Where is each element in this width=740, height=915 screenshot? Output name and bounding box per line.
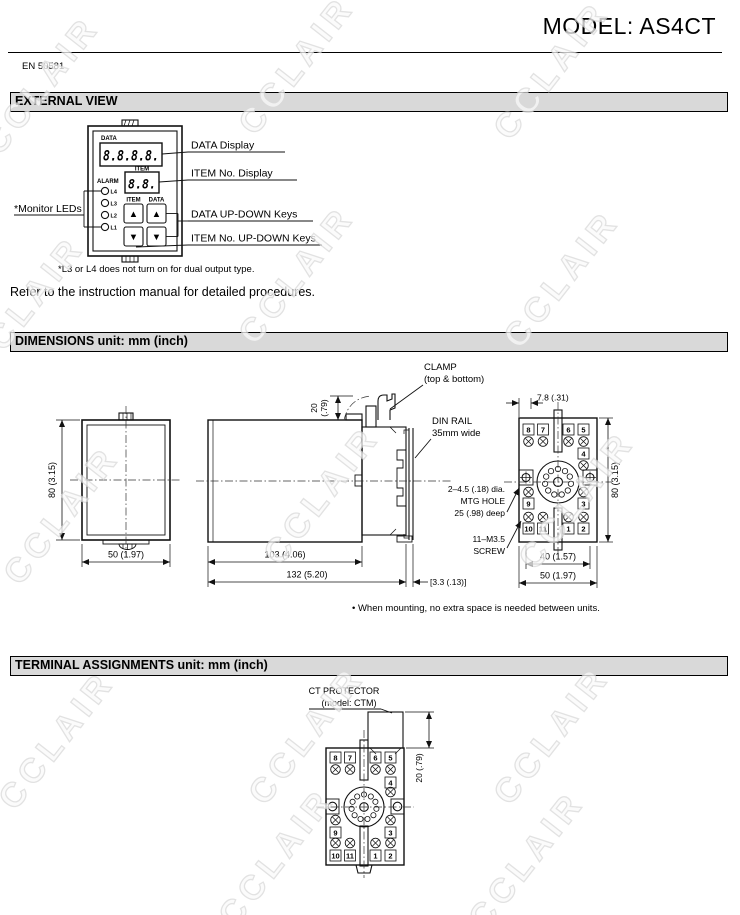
callout-lines: *Monitor LEDs DATA Display ITEM No. Disp… <box>14 140 322 248</box>
front-panel-drawing: DATA 8.8.8.8. ITEM 8.8. ALARM L4 L3 L2 L… <box>88 120 182 262</box>
terminal-assignments-figure: CT PROTECTOR (model: CTM) 8 7 6 5 4 <box>0 680 740 915</box>
down-arrow-icon: ▼ <box>152 232 161 243</box>
din-rail-callout: DIN RAIL <box>432 416 472 427</box>
mounting-note: • When mounting, no extra space is neede… <box>352 603 600 614</box>
led-icon <box>101 223 108 230</box>
data-keys-callout: DATA UP-DOWN Keys <box>191 209 297 221</box>
terminal-number: 4 <box>581 450 586 459</box>
din-rail-callout-2: 35mm wide <box>432 428 481 439</box>
body-depth-dim: 103 (4.06) <box>264 550 305 560</box>
terminal-number: 7 <box>348 754 352 763</box>
led-icon <box>101 187 108 194</box>
mtg-hole-callout-3: 25 (.98) deep <box>454 508 505 518</box>
din-rail-clip <box>397 450 406 506</box>
clamp-height-dim-in: (.79) <box>319 399 329 417</box>
clamp-callout: CLAMP <box>424 362 457 373</box>
terminal-number: 3 <box>581 500 585 509</box>
mtg-hole-callout-2: MTG HOLE <box>461 496 506 506</box>
protector-height-dim: 20 (.79) <box>414 753 424 782</box>
led-icon <box>101 211 108 218</box>
terminal-number: 9 <box>526 500 530 509</box>
terminal-number: 5 <box>581 426 585 435</box>
hole-pitch-dim: 40 (1.57) <box>540 552 576 562</box>
led-label: L3 <box>111 202 117 208</box>
terminal-number: 6 <box>373 754 377 763</box>
socket-height-dim: 80 (3.15) <box>610 462 620 498</box>
up-arrow-icon: ▲ <box>129 209 138 220</box>
terminal-number: 8 <box>333 754 337 763</box>
socket-terminals: 8 7 6 5 4 9 3 10 11 1 <box>330 752 396 861</box>
led-icon <box>101 199 108 206</box>
datasheet-page: CCLAIR CCLAIR CCLAIR CCLAIR CCLAIR CCLAI… <box>0 0 740 915</box>
terminal-number: 1 <box>566 525 570 534</box>
terminal-socket-drawing: 8 7 6 5 4 9 3 10 11 1 <box>316 730 414 878</box>
front-view-drawing: 80 (3.15) 50 (1.97) <box>47 406 182 567</box>
screw-callout: 11–M3.5 <box>473 534 506 544</box>
terminal-number: 7 <box>541 426 545 435</box>
terminal-number: 10 <box>524 525 532 534</box>
alarm-label: ALARM <box>97 179 119 185</box>
data-display-digits: 8.8.8.8. <box>103 149 159 165</box>
item-keys-column-label: ITEM <box>126 198 140 204</box>
terminal-number: 11 <box>539 525 547 534</box>
refer-note: Refer to the instruction manual for deta… <box>10 285 315 299</box>
terminal-number: 8 <box>526 426 530 435</box>
terminal-number: 2 <box>388 852 392 861</box>
terminal-number: 2 <box>581 525 585 534</box>
mtg-hole-callout: 2–4.5 (.18) dia. <box>448 484 505 494</box>
item-display-callout: ITEM No. Display <box>191 168 273 180</box>
ct-protector-callout-2: (model: CTM) <box>321 698 376 708</box>
ct-protector-callout: CT PROTECTOR <box>309 686 380 696</box>
front-width-dim: 50 (1.97) <box>108 550 144 560</box>
hole-offset-dim: 7.8 (.31) <box>537 393 569 403</box>
led-label: L4 <box>111 190 118 196</box>
terminal-number: 10 <box>331 852 339 861</box>
led-footnote: *L3 or L4 does not turn on for dual outp… <box>58 264 254 275</box>
mounting-hole-icon <box>393 802 402 811</box>
total-depth-dim: 132 (5.20) <box>286 570 327 580</box>
socket-view-drawing: 8 7 6 5 4 9 3 10 11 1 <box>448 393 620 589</box>
led-label: L2 <box>111 214 117 220</box>
clamp-callout-2: (top & bottom) <box>424 374 484 385</box>
dimensions-figure: 80 (3.15) 50 (1.97) 20 (.79) <box>0 356 740 644</box>
mounting-hole-icon <box>328 802 337 811</box>
screw-callout-2: SCREW <box>473 546 505 556</box>
monitor-leds: L4 L3 L2 L1 <box>101 187 117 231</box>
item-display-digits: 8.8. <box>128 178 156 193</box>
data-keys-column-label: DATA <box>149 198 165 204</box>
item-keys-callout: ITEM No. UP-DOWN Keys <box>191 233 316 245</box>
section-header-external-view: EXTERNAL VIEW <box>10 92 728 112</box>
terminal-number: 5 <box>388 754 392 763</box>
terminal-number: 6 <box>566 426 570 435</box>
external-view-figure: DATA 8.8.8.8. ITEM 8.8. ALARM L4 L3 L2 L… <box>0 114 740 266</box>
terminal-number: 4 <box>388 779 393 788</box>
terminal-number: 9 <box>333 829 337 838</box>
ct-protector-box <box>368 712 403 748</box>
rail-gap-dim: [3.3 (.13)] <box>430 577 466 587</box>
data-display-callout: DATA Display <box>191 140 255 152</box>
side-view-drawing: 20 (.79) 103 (4.06) 132 (5.20) [3.3 (.13… <box>196 362 484 587</box>
page-title: MODEL: AS4CT <box>543 13 716 40</box>
data-display-label: DATA <box>101 136 117 142</box>
down-arrow-icon: ▼ <box>129 232 138 243</box>
header-rule <box>8 52 722 53</box>
terminal-number: 3 <box>388 829 392 838</box>
terminal-number: 11 <box>346 852 354 861</box>
up-arrow-icon: ▲ <box>152 209 161 220</box>
front-height-dim: 80 (3.15) <box>47 462 57 498</box>
standard-label: EN 50581 <box>22 61 64 72</box>
terminal-number: 1 <box>373 852 377 861</box>
section-header-dimensions: DIMENSIONS unit: mm (inch) <box>10 332 728 352</box>
socket-width-dim: 50 (1.97) <box>540 571 576 581</box>
clamp-height-dim-mm: 20 <box>309 403 319 413</box>
monitor-leds-callout: *Monitor LEDs <box>14 203 82 215</box>
section-header-terminal-assignments: TERMINAL ASSIGNMENTS unit: mm (inch) <box>10 656 728 676</box>
led-label: L1 <box>111 226 117 232</box>
